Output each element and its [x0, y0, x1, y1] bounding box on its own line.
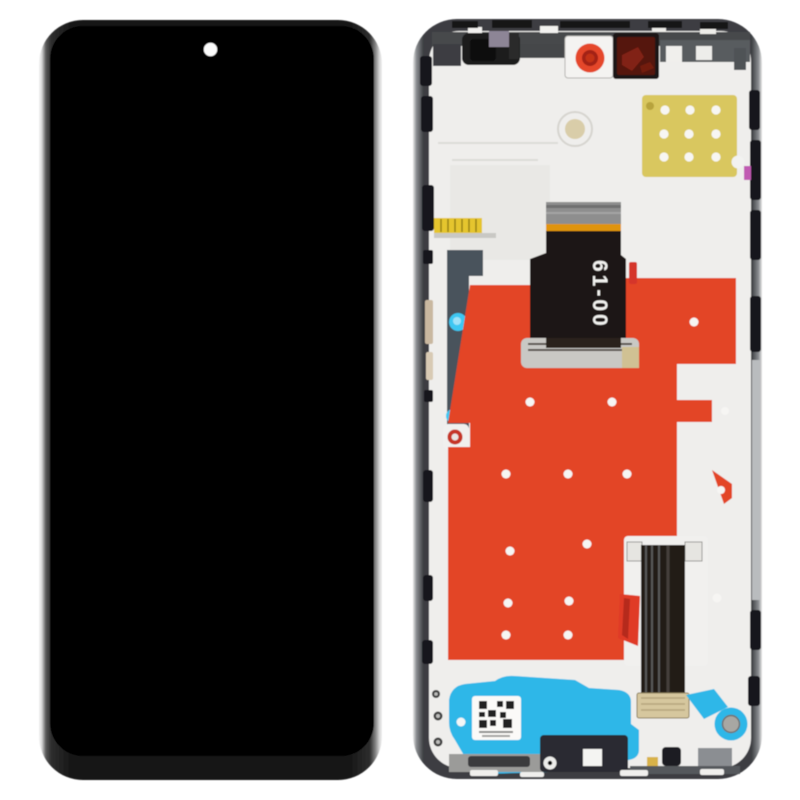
svg-text:61-00: 61-00 — [588, 260, 611, 329]
